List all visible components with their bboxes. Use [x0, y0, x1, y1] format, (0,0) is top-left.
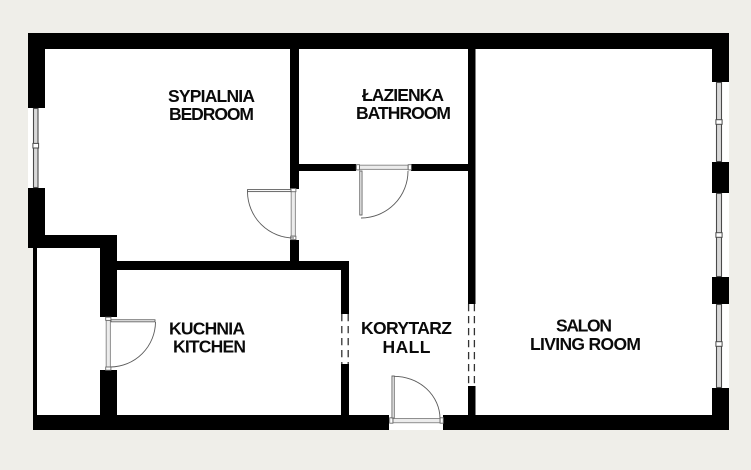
svg-text:SALON: SALON: [556, 316, 612, 336]
svg-text:SYPIALNIA: SYPIALNIA: [168, 86, 255, 106]
svg-text:LIVING ROOM: LIVING ROOM: [530, 334, 641, 354]
svg-text:KITCHEN: KITCHEN: [173, 337, 246, 357]
svg-text:HALL: HALL: [383, 337, 431, 357]
svg-text:ŁAZIENKA: ŁAZIENKA: [362, 85, 444, 105]
svg-text:KORYTARZ: KORYTARZ: [361, 318, 452, 338]
svg-text:KUCHNIA: KUCHNIA: [169, 319, 245, 339]
svg-text:BATHROOM: BATHROOM: [356, 103, 451, 123]
svg-text:BEDROOM: BEDROOM: [169, 104, 254, 124]
